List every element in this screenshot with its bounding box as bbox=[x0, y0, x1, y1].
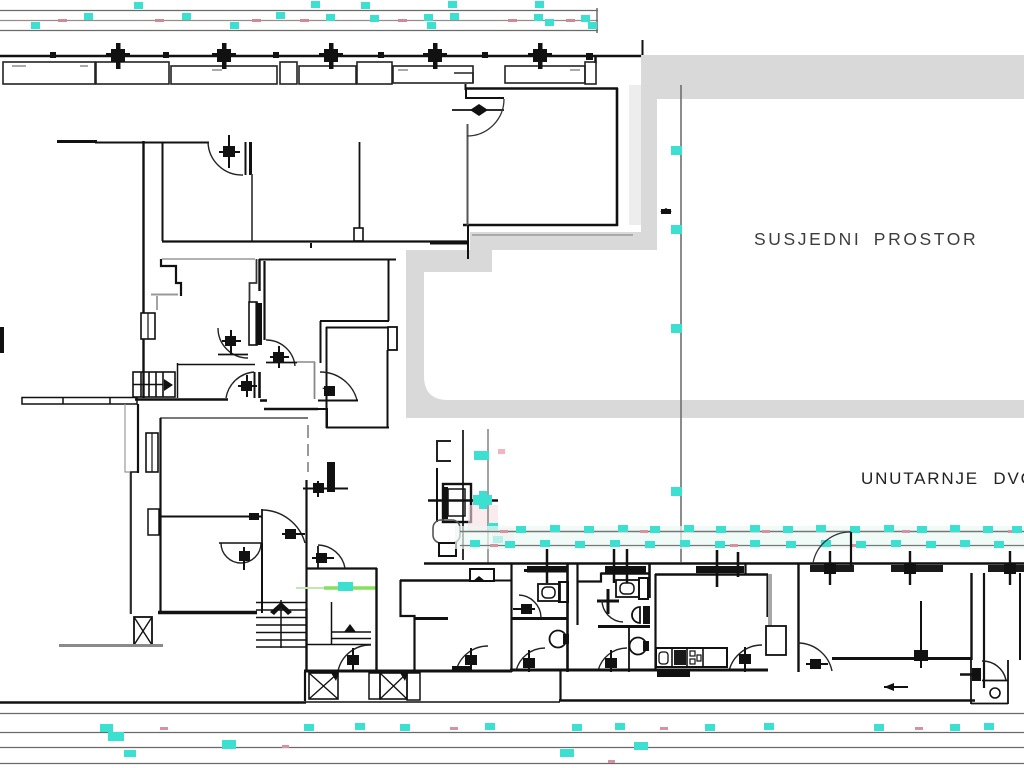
svg-text:UNUTARNJE DVORIŠTE: UNUTARNJE DVORIŠTE bbox=[861, 469, 1024, 488]
svg-text:SUSJEDNI PROSTOR: SUSJEDNI PROSTOR bbox=[754, 229, 978, 249]
